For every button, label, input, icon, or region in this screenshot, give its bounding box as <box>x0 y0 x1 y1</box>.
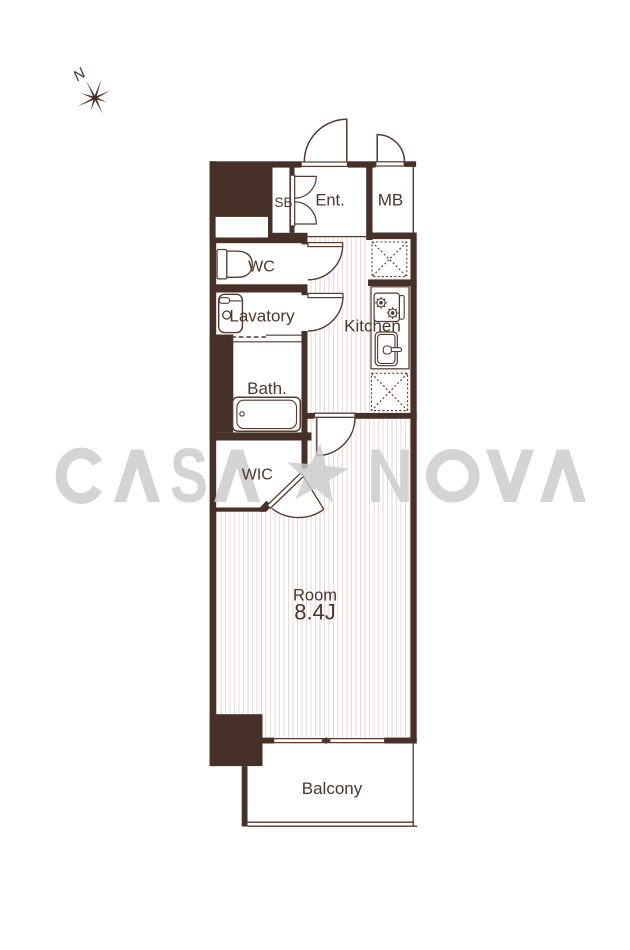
svg-text:SB: SB <box>274 195 292 210</box>
svg-text:Lavatory: Lavatory <box>229 307 295 326</box>
svg-text:Bath.: Bath. <box>247 379 287 398</box>
svg-text:N: N <box>70 65 89 85</box>
svg-text:S: S <box>170 433 208 519</box>
svg-text:MB: MB <box>378 191 404 210</box>
svg-text:WIC: WIC <box>242 467 273 484</box>
svg-text:Kitchen: Kitchen <box>344 317 401 336</box>
svg-text:Ent.: Ent. <box>315 192 344 210</box>
svg-text:Balcony: Balcony <box>302 779 363 798</box>
svg-text:WC: WC <box>248 259 275 276</box>
svg-text:8.4J: 8.4J <box>294 600 336 625</box>
